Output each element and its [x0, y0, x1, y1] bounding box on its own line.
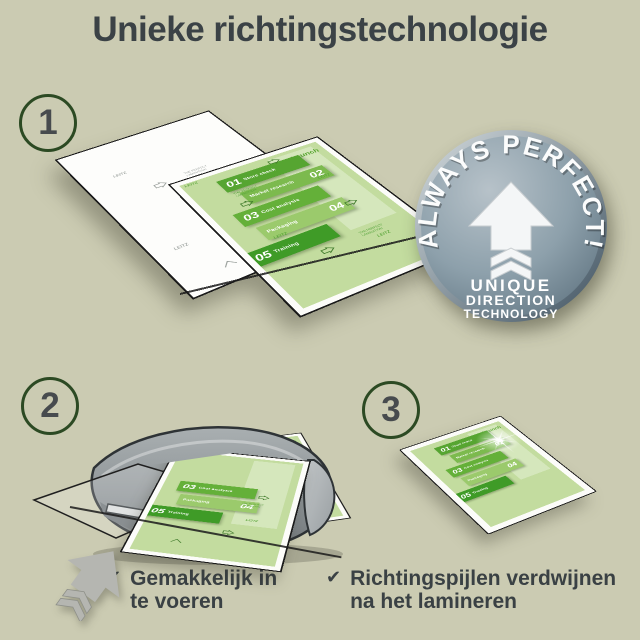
checklist-line: Richtingspijlen verdwijnen [350, 567, 616, 590]
badge-graphic: ALWAYS PERFECT! ALWAYS PERFECT! UNIQUE D… [413, 128, 609, 324]
infographic-poster: Unieke richtingstechnologie 1 LEITZ LEIT… [0, 0, 640, 640]
corner-mark-icon [168, 537, 186, 545]
step-2-scene: Launch 01 Store check Market research 02 [30, 380, 400, 638]
watermark-text: LEITZ [173, 243, 190, 252]
page-title: Unieke richtingstechnologie [0, 10, 640, 50]
step-1-scene: LEITZ LEITZ LEITZ THE PERFECT LAMINATION… [25, 55, 455, 380]
checklist-line: na het lamineren [350, 590, 616, 613]
watermark-text: LEITZ [112, 171, 128, 178]
direction-arrow-icon [316, 243, 339, 256]
badge-line-3: TECHNOLOGY [464, 307, 559, 321]
badge-line-2: DIRECTION [466, 292, 557, 308]
step-3-scene: Launch 01 Store check Market research 02… [350, 378, 640, 568]
corner-mark-icon [217, 256, 242, 270]
document-feeding: 03 Cost analysis Packaging 04 05 Trainin… [129, 451, 303, 567]
feed-direction-arrow-icon [38, 526, 153, 621]
laminated-document: Launch 01 Store check Market research 02… [410, 421, 585, 527]
always-perfect-badge: ALWAYS PERFECT! ALWAYS PERFECT! UNIQUE D… [413, 128, 609, 324]
watermark-text: LEITZ [184, 181, 200, 188]
